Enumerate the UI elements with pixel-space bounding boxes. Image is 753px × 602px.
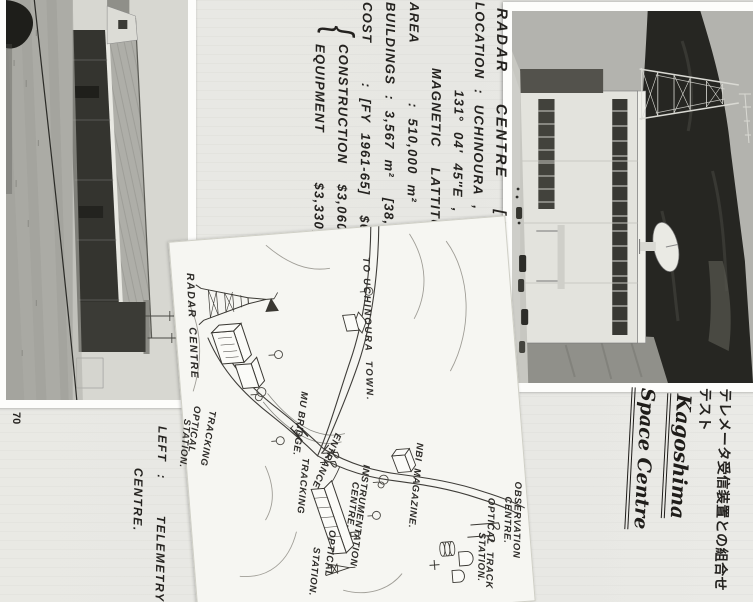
scanned-album-page: テレメータ受信装置との組合せテスト Kagoshima Space Centre… [0, 0, 753, 602]
photo2-caption-line2: CENTRE. [130, 468, 145, 532]
site-name-line2: Space Centre [629, 388, 658, 530]
radar-centre-photo [503, 2, 753, 392]
telemetry-centre-photo [0, 0, 196, 408]
radar-centre-photo-image [512, 11, 753, 383]
barrel-stack-sketch [428, 541, 457, 570]
map-label-optical-track-station: STATION. [475, 532, 487, 582]
page-number: 70 [10, 412, 22, 424]
map-label-observation-centre: CENTRE. [501, 496, 513, 544]
japanese-note: テレメータ受信装置との組合せテスト [690, 388, 736, 602]
page-portrait-canvas: テレメータ受信装置との組合せテスト Kagoshima Space Centre… [0, 0, 753, 602]
site-map-sheet: RADAR CENTRE TRACKING OPTICAL STATION. T… [168, 215, 535, 602]
radar-buildings-sketch [211, 322, 265, 391]
photo2-caption-line1: LEFT : TELEMETRY [152, 426, 169, 602]
observation-buildings-sketch [451, 551, 475, 583]
telemetry-centre-photo-image [6, 0, 188, 400]
radar-tower-sketch [196, 278, 280, 324]
cost-brace: { [316, 26, 361, 36]
site-name-line1: Kagoshima [666, 393, 697, 519]
